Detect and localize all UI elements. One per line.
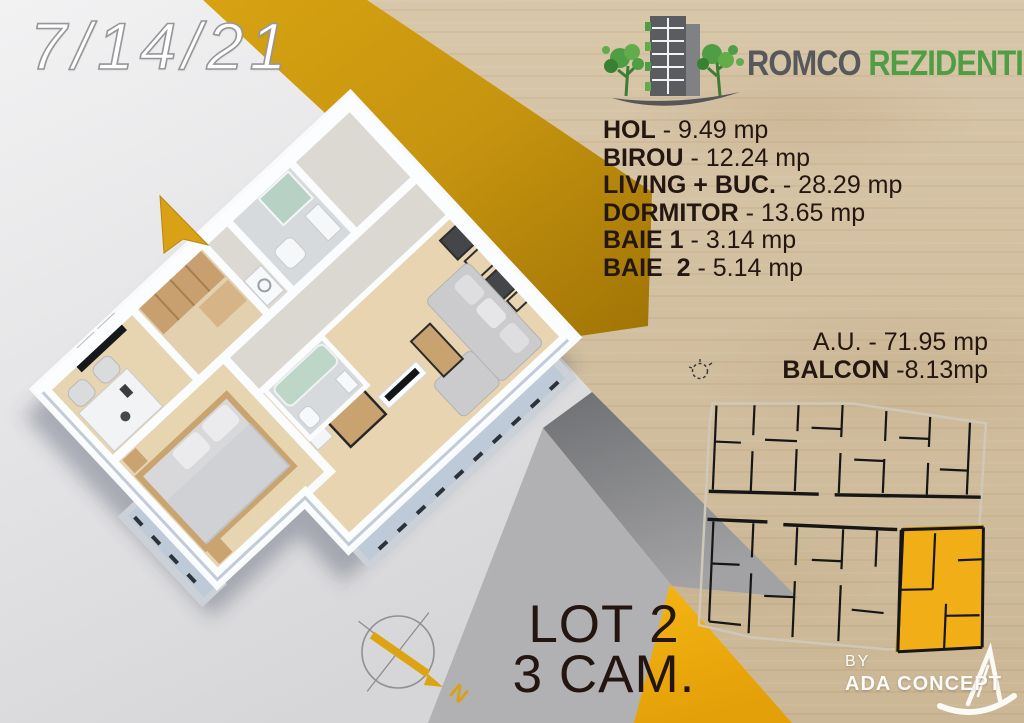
balcony-value: -8.13mp [896,356,988,384]
brand-name-primary: ROMCO [747,44,861,83]
room-line: DORMITOR - 13.65 mp [603,200,902,228]
lot-rooms: 3 CAM. [494,650,714,700]
room-label: BAIE 1 [603,226,684,254]
romco-logo-icon [602,16,744,106]
brand-name-secondary: REZIDENTIAL [868,44,1024,83]
balcony-line: BALCON -8.13mp [782,357,988,385]
usable-area-label: A.U. [813,328,862,356]
building-icon [645,16,700,96]
sun-doodle-icon [689,359,712,379]
room-value: - 28.29 mp [783,171,903,199]
room-line: LIVING + BUC. - 28.29 mp [603,172,902,200]
room-label: LIVING + BUC. [603,171,776,199]
room-value: - 3.14 mp [691,226,797,254]
brand-wordmark: ROMCO REZIDENTIAL [747,44,1024,84]
usable-area-line: A.U. - 71.95 mp [782,329,988,357]
credit-by-label: BY [845,651,1002,673]
building-schematic [698,397,992,655]
room-label: HOL [603,116,656,144]
room-label: BIROU [603,144,684,172]
tree-icon [602,44,644,96]
area-summary: A.U. - 71.95 mp BALCON -8.13mp [782,329,988,384]
room-line: HOL - 9.49 mp [603,117,902,145]
balcony-label: BALCON [782,356,889,384]
lot-title: LOT 2 3 CAM. [494,600,714,700]
lot-number: LOT 2 [494,600,714,650]
room-line: BAIE 1 - 3.14 mp [603,227,902,255]
room-line: BAIE 2 - 5.14 mp [603,255,902,283]
credit-block: BY ADA CONCEPT [845,651,1002,695]
tree-icon [697,44,744,96]
room-value: - 5.14 mp [697,254,803,282]
room-value: - 9.49 mp [663,116,769,144]
poster-canvas: N [0,0,1024,723]
date-stamp: 7/14/21 [30,8,292,84]
room-label: DORMITOR [603,199,739,227]
room-line: BIROU - 12.24 mp [603,145,902,173]
room-value: - 13.65 mp [746,199,866,227]
room-value: - 12.24 mp [691,144,811,172]
credit-company-name: ADA CONCEPT [845,673,1002,695]
room-list: HOL - 9.49 mp BIROU - 12.24 mp LIVING + … [603,117,902,282]
usable-area-value: - 71.95 mp [868,328,988,356]
room-label: BAIE 2 [603,254,691,282]
